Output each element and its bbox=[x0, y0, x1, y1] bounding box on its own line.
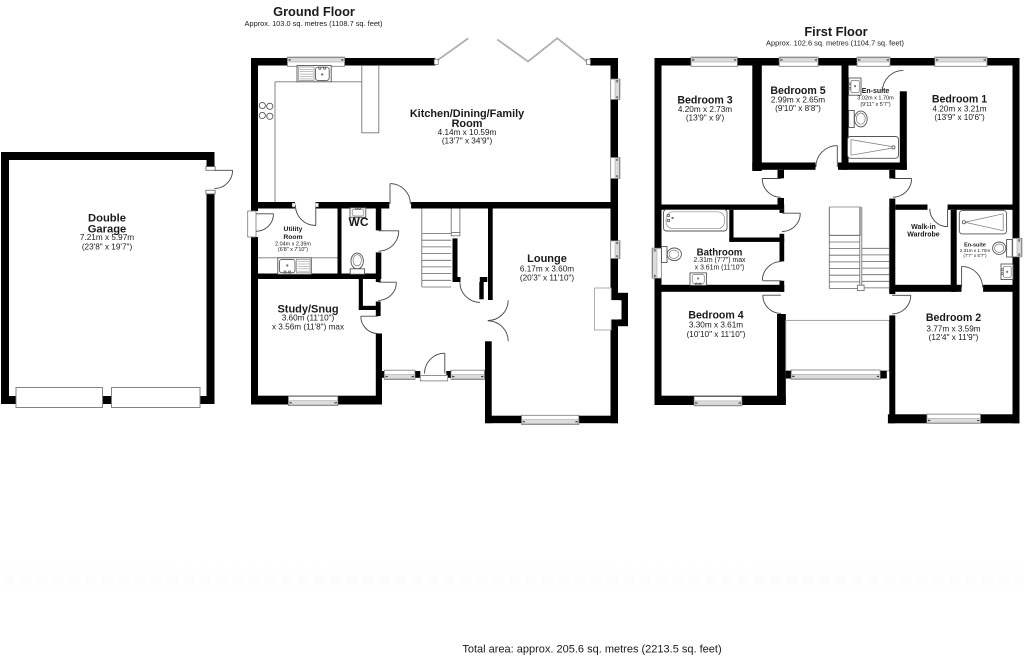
svg-text:(6'8" x 7'10"): (6'8" x 7'10") bbox=[278, 247, 308, 253]
svg-text:(10'10" x 11'10"): (10'10" x 11'10") bbox=[687, 330, 746, 339]
svg-text:x 3.56m (11'8") max: x 3.56m (11'8") max bbox=[272, 323, 344, 332]
svg-text:En-suite: En-suite bbox=[862, 88, 890, 95]
svg-text:Approx. 102.6 sq. metres (1104: Approx. 102.6 sq. metres (1104.7 sq. fee… bbox=[766, 39, 904, 48]
svg-text:(23'8" x 19'7"): (23'8" x 19'7") bbox=[82, 243, 133, 252]
svg-text:First Floor: First Floor bbox=[804, 24, 867, 39]
svg-text:2.31m (7'7") max: 2.31m (7'7") max bbox=[693, 257, 746, 264]
svg-text:3.30m x 3.61m: 3.30m x 3.61m bbox=[689, 321, 743, 330]
svg-text:Approx. 103.0 sq. metres (1108: Approx. 103.0 sq. metres (1108.7 sq. fee… bbox=[245, 19, 383, 28]
svg-text:Room: Room bbox=[283, 234, 302, 241]
svg-text:Ground Floor: Ground Floor bbox=[273, 4, 355, 19]
svg-text:Wardrobe: Wardrobe bbox=[907, 231, 940, 238]
svg-text:Total area: approx. 205.6 sq.: Total area: approx. 205.6 sq. metres (22… bbox=[462, 644, 721, 656]
svg-text:x 3.61m (11'10"): x 3.61m (11'10") bbox=[695, 264, 745, 271]
svg-text:3.77m x 3.59m: 3.77m x 3.59m bbox=[926, 324, 980, 333]
svg-text:(9'10" x 8'8"): (9'10" x 8'8") bbox=[775, 104, 821, 113]
svg-text:3.60m (11'10"): 3.60m (11'10") bbox=[282, 314, 335, 323]
svg-text:3.02m x 1.70m: 3.02m x 1.70m bbox=[857, 96, 894, 102]
svg-text:(9'11" x 5'7"): (9'11" x 5'7") bbox=[860, 102, 891, 108]
svg-text:7.21m x 5.97m: 7.21m x 5.97m bbox=[80, 233, 134, 242]
svg-text:Utility: Utility bbox=[284, 226, 303, 233]
svg-text:WC: WC bbox=[349, 215, 369, 229]
svg-text:(12'4" x 11'9"): (12'4" x 11'9") bbox=[929, 333, 979, 342]
svg-text:6.17m x 3.60m: 6.17m x 3.60m bbox=[520, 265, 574, 274]
svg-text:Lounge: Lounge bbox=[527, 253, 567, 265]
svg-text:Bedroom 2: Bedroom 2 bbox=[926, 312, 981, 324]
svg-text:(13'9" x 9'): (13'9" x 9') bbox=[686, 114, 725, 123]
svg-text:(13'9" x 10'6"): (13'9" x 10'6") bbox=[934, 113, 985, 122]
svg-text:(20'3" x 11'10"): (20'3" x 11'10") bbox=[520, 274, 575, 283]
svg-text:(7'7" x 5'7"): (7'7" x 5'7") bbox=[963, 253, 987, 258]
svg-text:(13'7" x 34'9"): (13'7" x 34'9") bbox=[442, 137, 493, 146]
svg-text:Walk-in: Walk-in bbox=[911, 224, 936, 231]
